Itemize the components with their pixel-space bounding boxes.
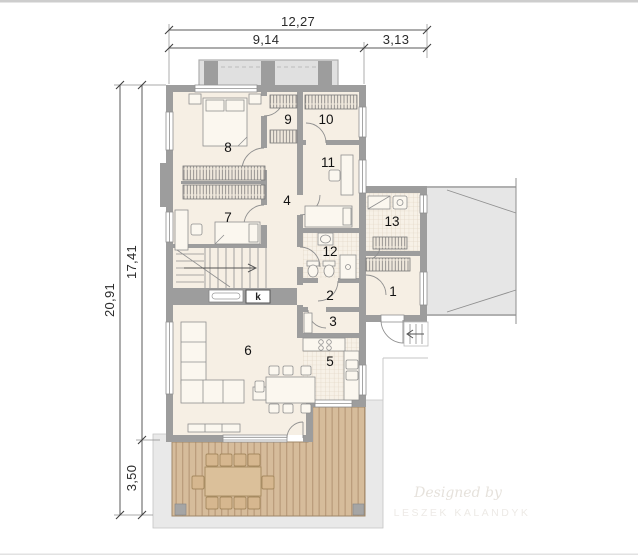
entrance-door: [381, 320, 404, 343]
window: [166, 212, 173, 242]
window: [166, 112, 173, 150]
dim-right-span: 3,13: [383, 32, 410, 47]
chair: [283, 404, 293, 413]
chair: [301, 366, 311, 375]
tv-lowboard: [188, 424, 240, 432]
watermark: Designed by LESZEK KALANDYK: [394, 485, 531, 519]
sideboard: [209, 290, 243, 302]
room-label-8: 8: [224, 140, 232, 155]
window: [359, 365, 366, 395]
desk: [175, 210, 188, 250]
window: [420, 195, 427, 213]
nightstand: [249, 94, 261, 104]
wardrobe: [270, 130, 297, 143]
sofa: [181, 380, 244, 403]
room-label-13: 13: [384, 214, 399, 229]
window: [359, 160, 366, 193]
floor-plan-page: k 1 2 3 4 5 6 7 8 9 10 11 12 13 12,27: [0, 0, 638, 556]
radiator: [373, 237, 407, 249]
room-label-3: 3: [329, 314, 337, 329]
canopy-pillar: [261, 61, 275, 87]
chair: [301, 404, 311, 413]
floor-plan-drawing: k 1 2 3 4 5 6 7 8 9 10 11 12 13 12,27: [0, 0, 638, 556]
canopy-pillar: [204, 61, 218, 87]
terrace-table: [205, 467, 261, 496]
desk: [341, 155, 353, 195]
hall-band: k: [209, 290, 270, 303]
window: [195, 85, 257, 92]
top-canopy: [199, 60, 338, 88]
deck-post: [175, 504, 186, 515]
washing-machine: [393, 196, 407, 209]
room-label-7: 7: [224, 210, 232, 225]
window: [166, 322, 173, 394]
wardrobe: [305, 95, 357, 109]
sink: [346, 360, 358, 369]
entrance-steps: [404, 322, 428, 346]
kitchen-counter: [303, 338, 345, 351]
chair: [191, 224, 202, 235]
room-label-1: 1: [389, 284, 397, 299]
window: [359, 107, 366, 137]
dining-table: [266, 377, 315, 403]
deck-post: [353, 504, 364, 515]
terrace-slider-window: [223, 435, 287, 442]
window: [420, 272, 427, 305]
wardrobe: [270, 95, 297, 108]
driveway-roof: [427, 178, 516, 324]
chair: [255, 381, 264, 392]
chair: [269, 404, 279, 413]
room-label-4: 4: [283, 193, 291, 208]
sofa: [181, 322, 206, 384]
nightstand: [189, 94, 201, 104]
pantry-shelves: [304, 313, 312, 333]
room-label-9: 9: [284, 112, 292, 127]
dim-total-height: 20,91: [102, 283, 117, 317]
dim-lower-span: 3,50: [124, 465, 139, 492]
room-label-10: 10: [318, 112, 333, 127]
window: [315, 400, 352, 407]
watermark-name-line: LESZEK KALANDYK: [394, 507, 531, 519]
sink: [346, 371, 358, 380]
chair: [269, 366, 279, 375]
room-label-6: 6: [244, 343, 252, 358]
dim-total-width: 12,27: [281, 14, 315, 29]
wardrobe: [183, 166, 265, 180]
utility-fixtures: [368, 196, 407, 209]
watermark-script-line: Designed by: [413, 485, 503, 501]
dim-upper-span: 17,41: [124, 245, 139, 279]
page-bottom-border: [0, 554, 638, 556]
page-top-border: [0, 0, 638, 3]
shower: [340, 255, 356, 279]
wardrobe: [183, 185, 265, 199]
room-label-12: 12: [322, 244, 337, 259]
room-label-2: 2: [326, 288, 334, 303]
chair: [283, 366, 293, 375]
wardrobe: [366, 258, 410, 271]
canopy-pillar: [318, 61, 332, 87]
room-label-5: 5: [326, 354, 334, 369]
chair: [329, 170, 340, 181]
room-label-11: 11: [321, 155, 335, 170]
fireplace-label: k: [255, 292, 261, 303]
dim-left-span: 9,14: [253, 32, 280, 47]
